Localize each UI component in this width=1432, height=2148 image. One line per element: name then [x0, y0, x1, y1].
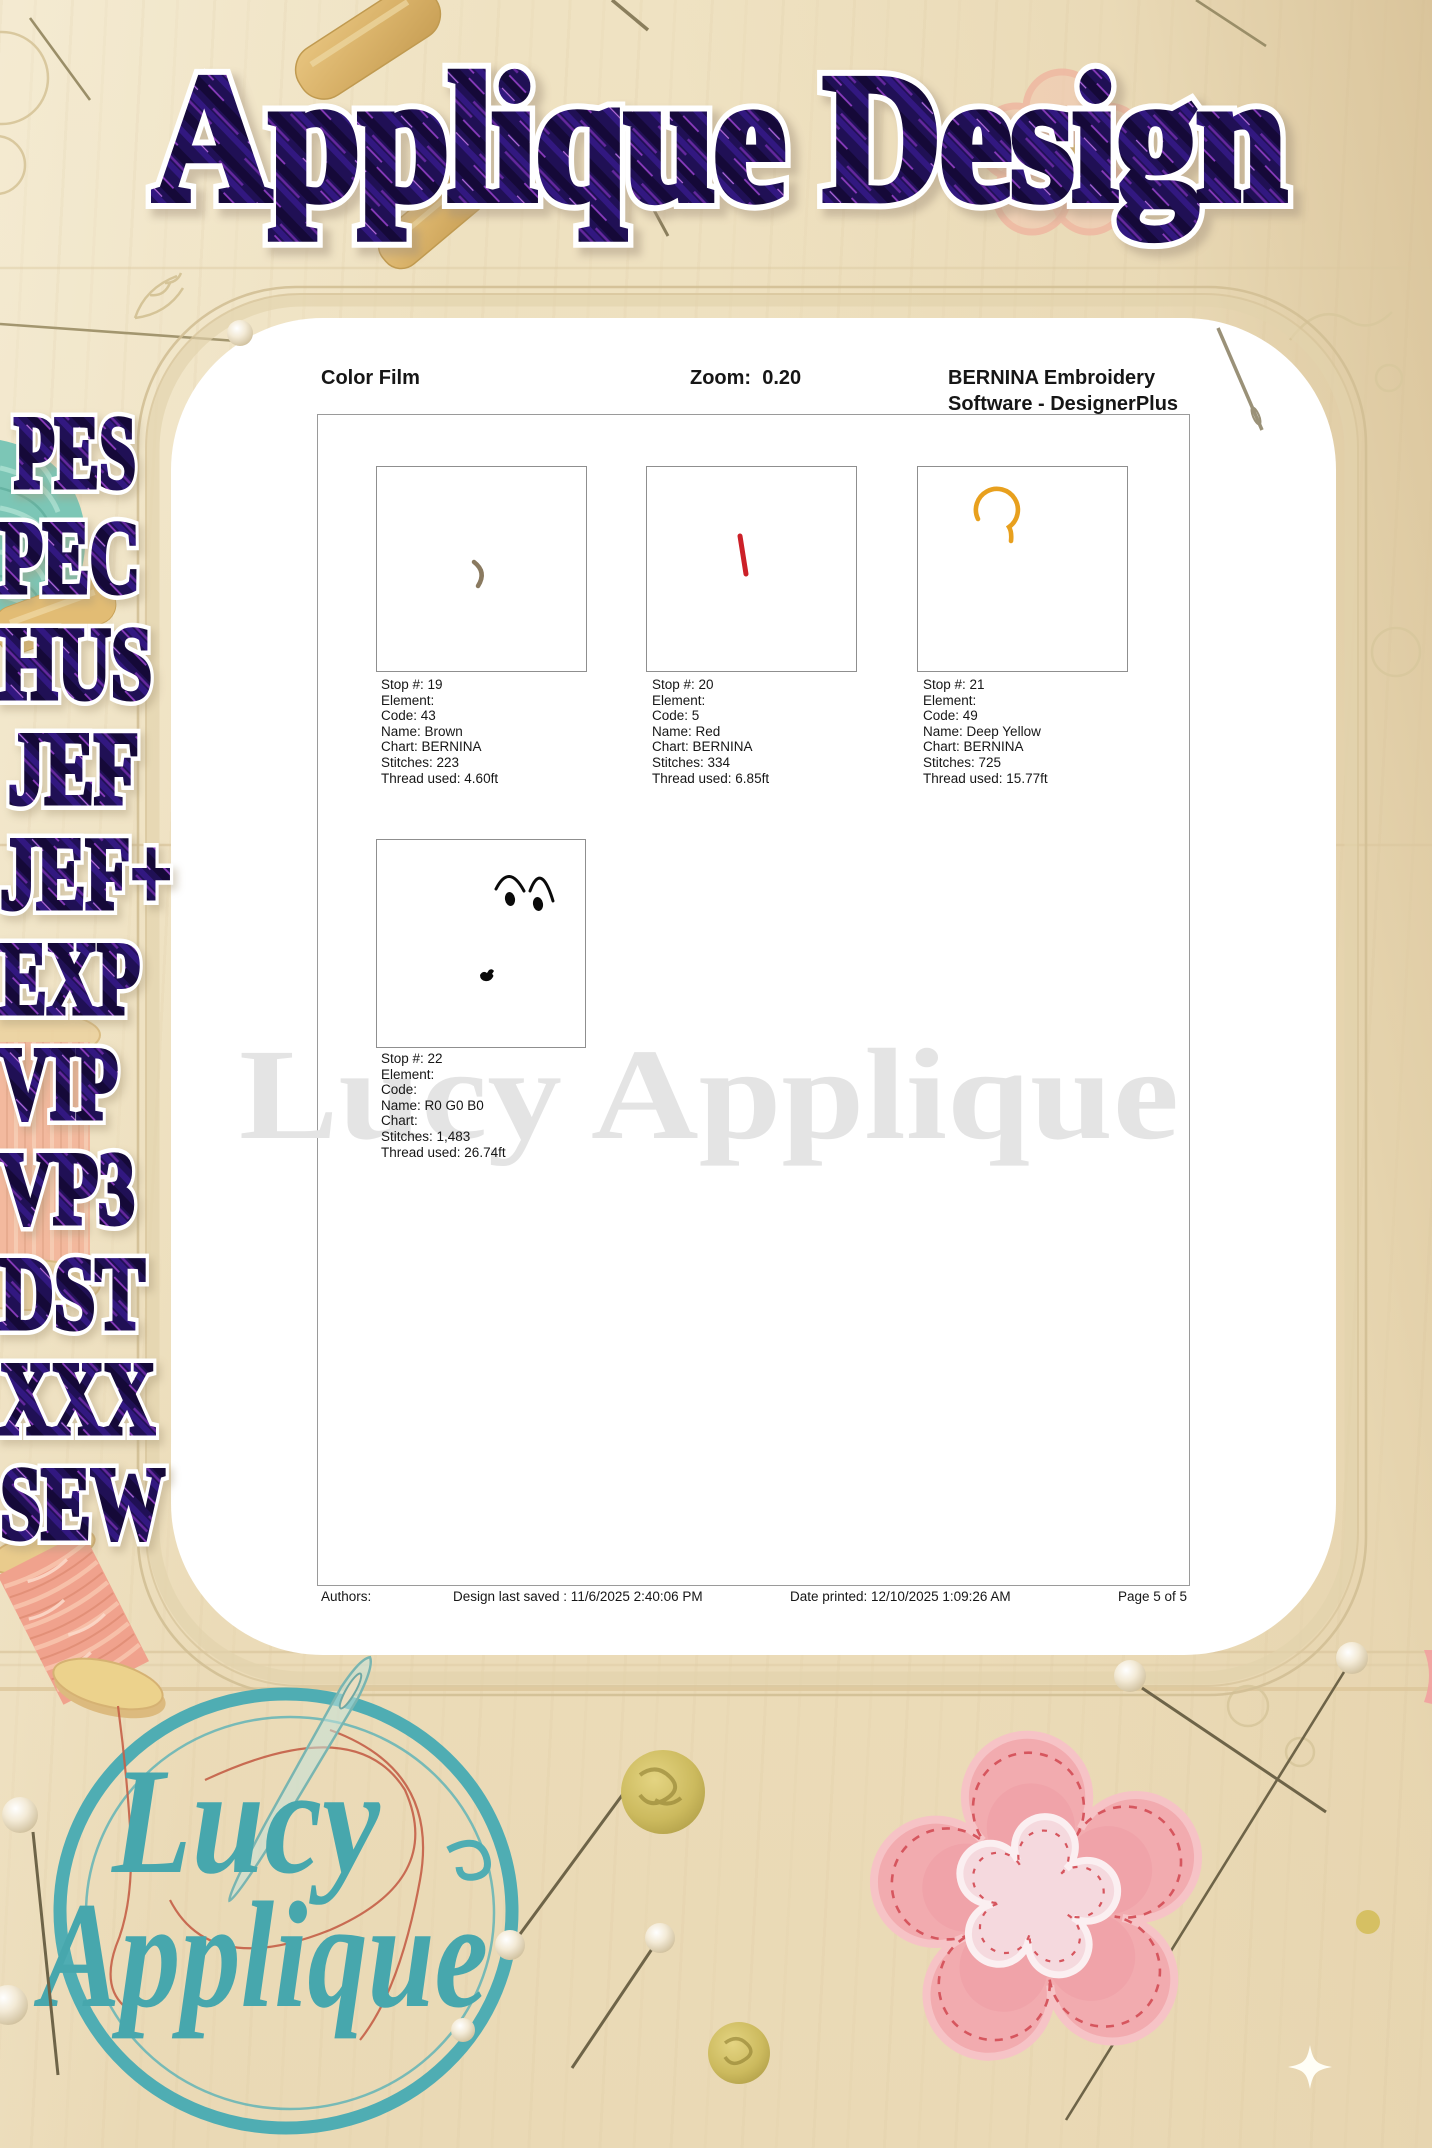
svg-text:Lucy Applique: Lucy Applique	[239, 1023, 1179, 1167]
